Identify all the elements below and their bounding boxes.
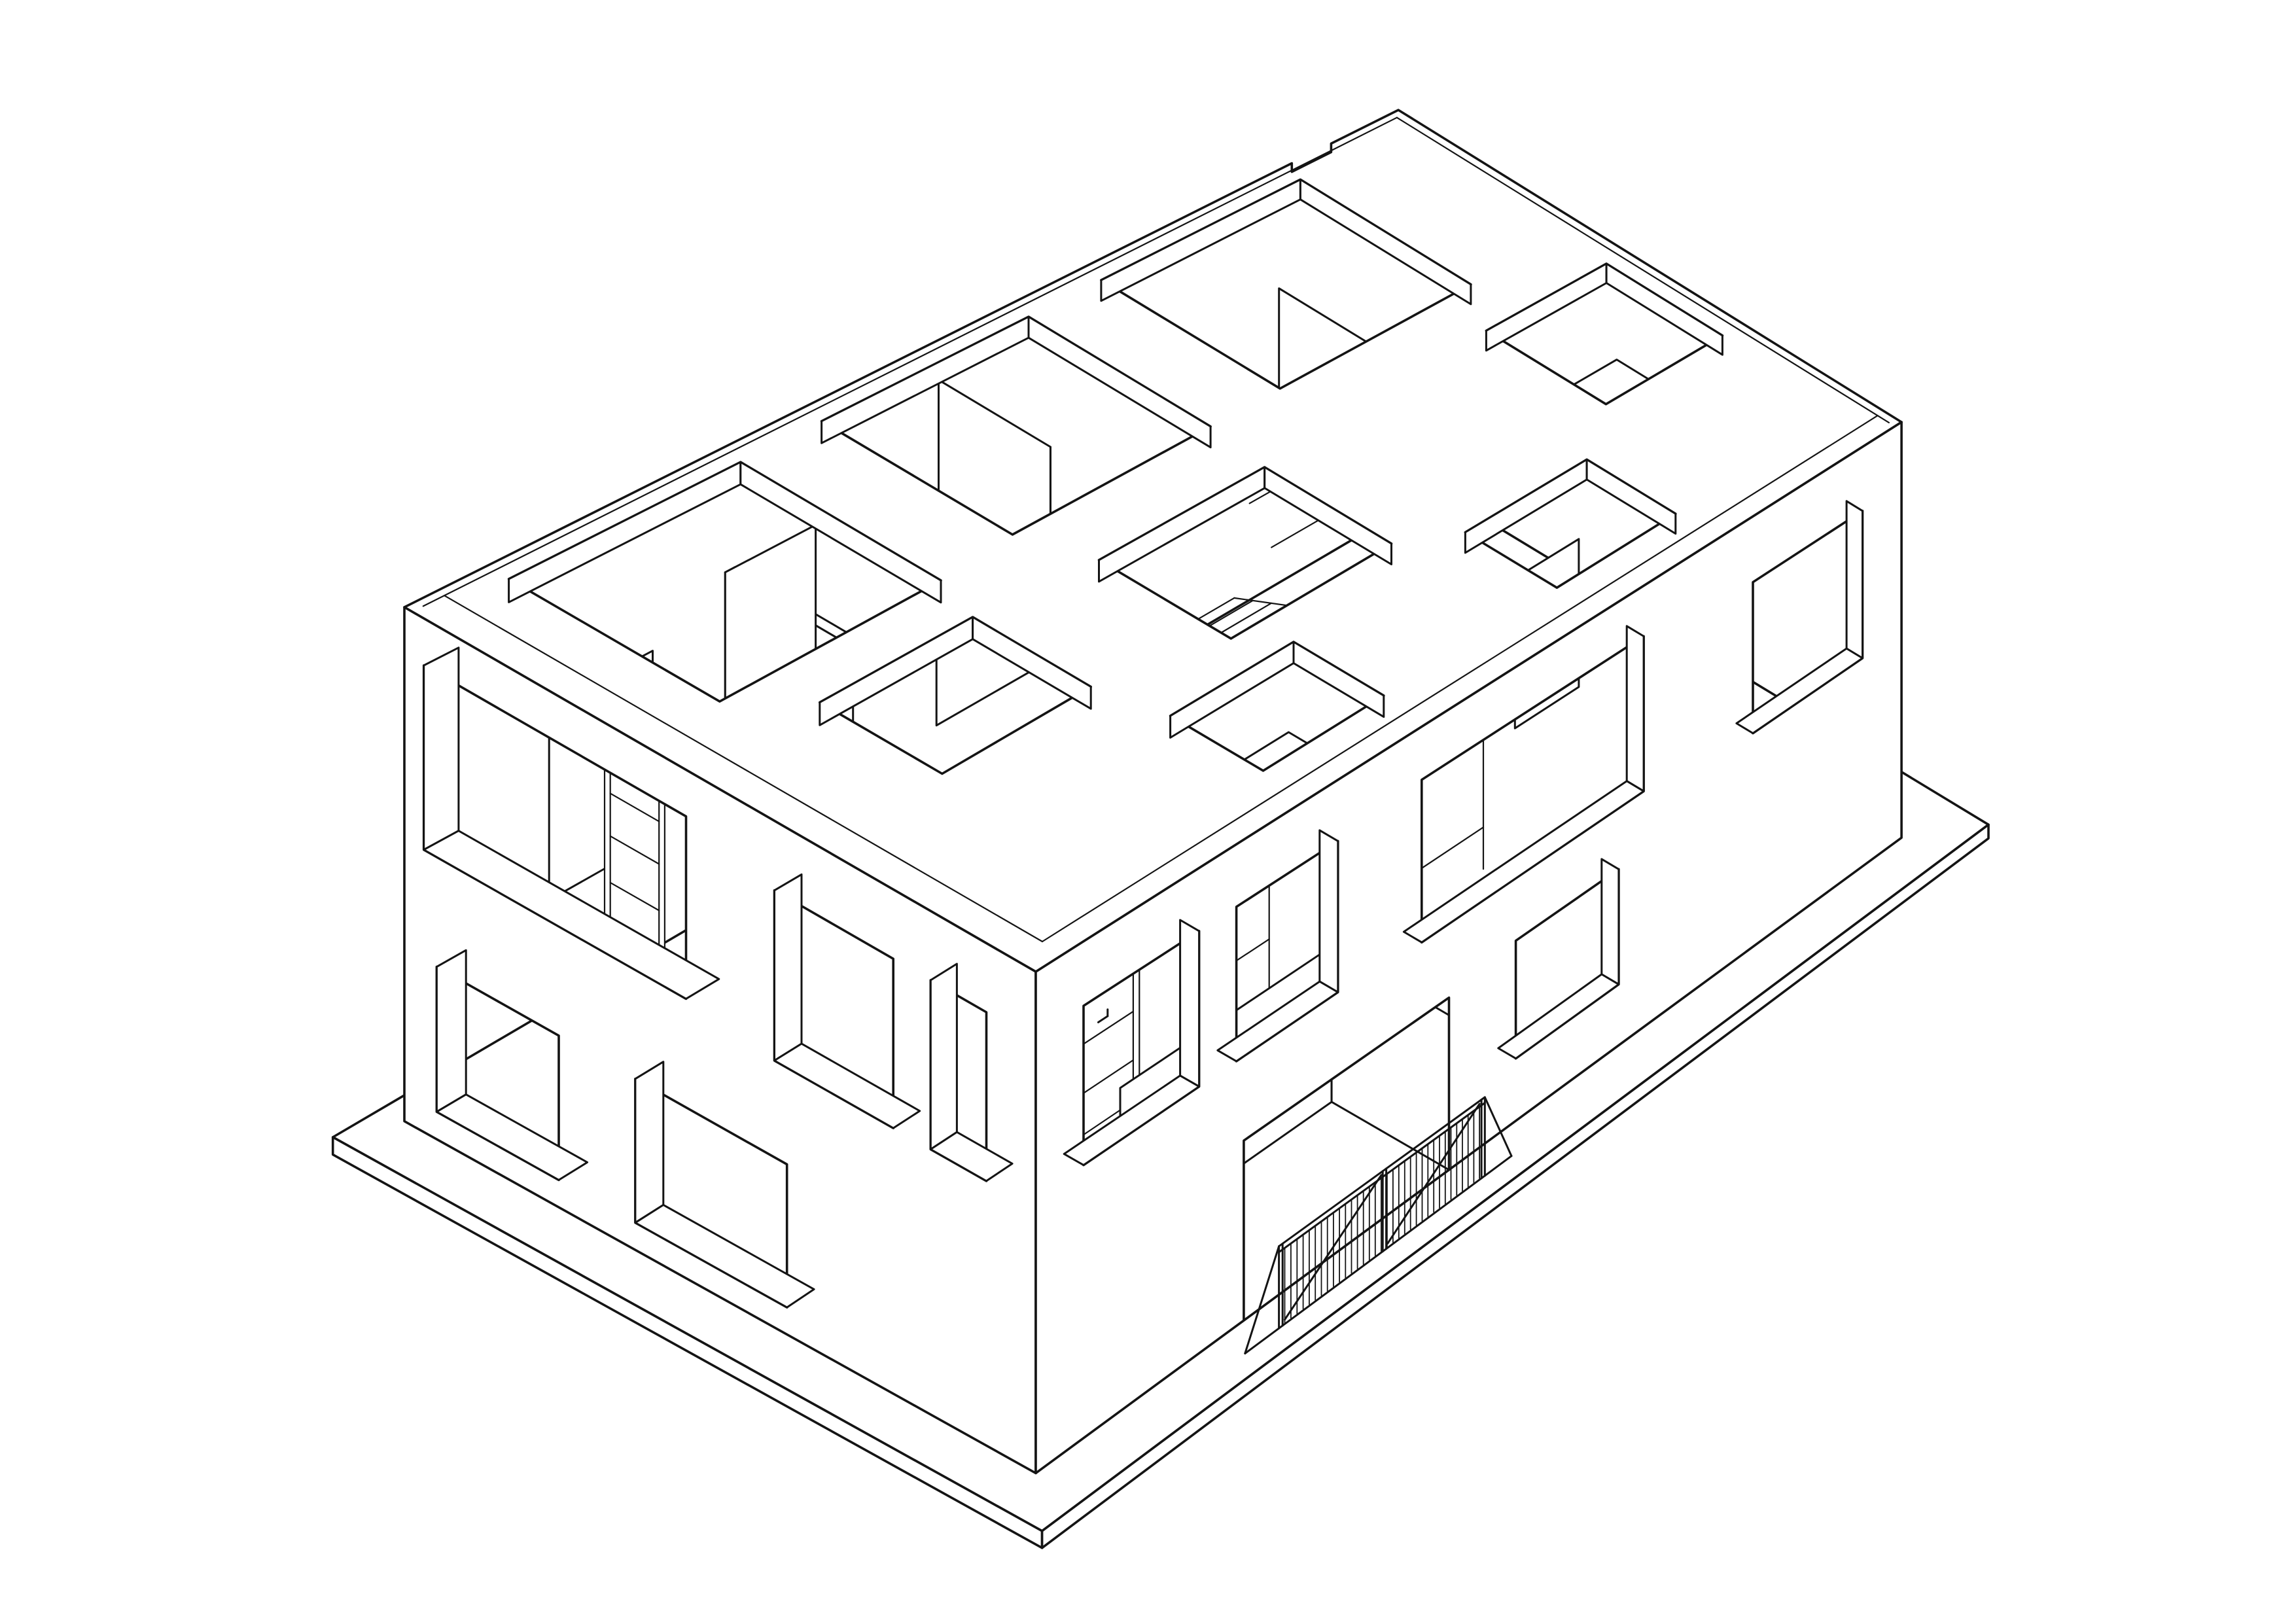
window-r2-jamb-reveal [1320, 830, 1338, 993]
window-r1-jamb-reveal [1180, 920, 1199, 1087]
window-g1-jamb-reveal [436, 950, 466, 1112]
window-w1-jamb-reveal [424, 648, 459, 850]
court1-curb-reveal [509, 462, 741, 602]
court3-curb-reveal [1101, 179, 1301, 300]
window-r4-jamb-reveal [1846, 501, 1862, 658]
window-w2-jamb-reveal [775, 874, 802, 1061]
window-r5-jamb-reveal [1602, 859, 1619, 985]
window-g2-jamb-reveal [635, 1062, 663, 1223]
window-w3-jamb-reveal [930, 964, 957, 1150]
page [0, 0, 2296, 1624]
window-r3-jamb-reveal [1627, 626, 1644, 791]
axonometric-building-drawing [0, 0, 2296, 1624]
